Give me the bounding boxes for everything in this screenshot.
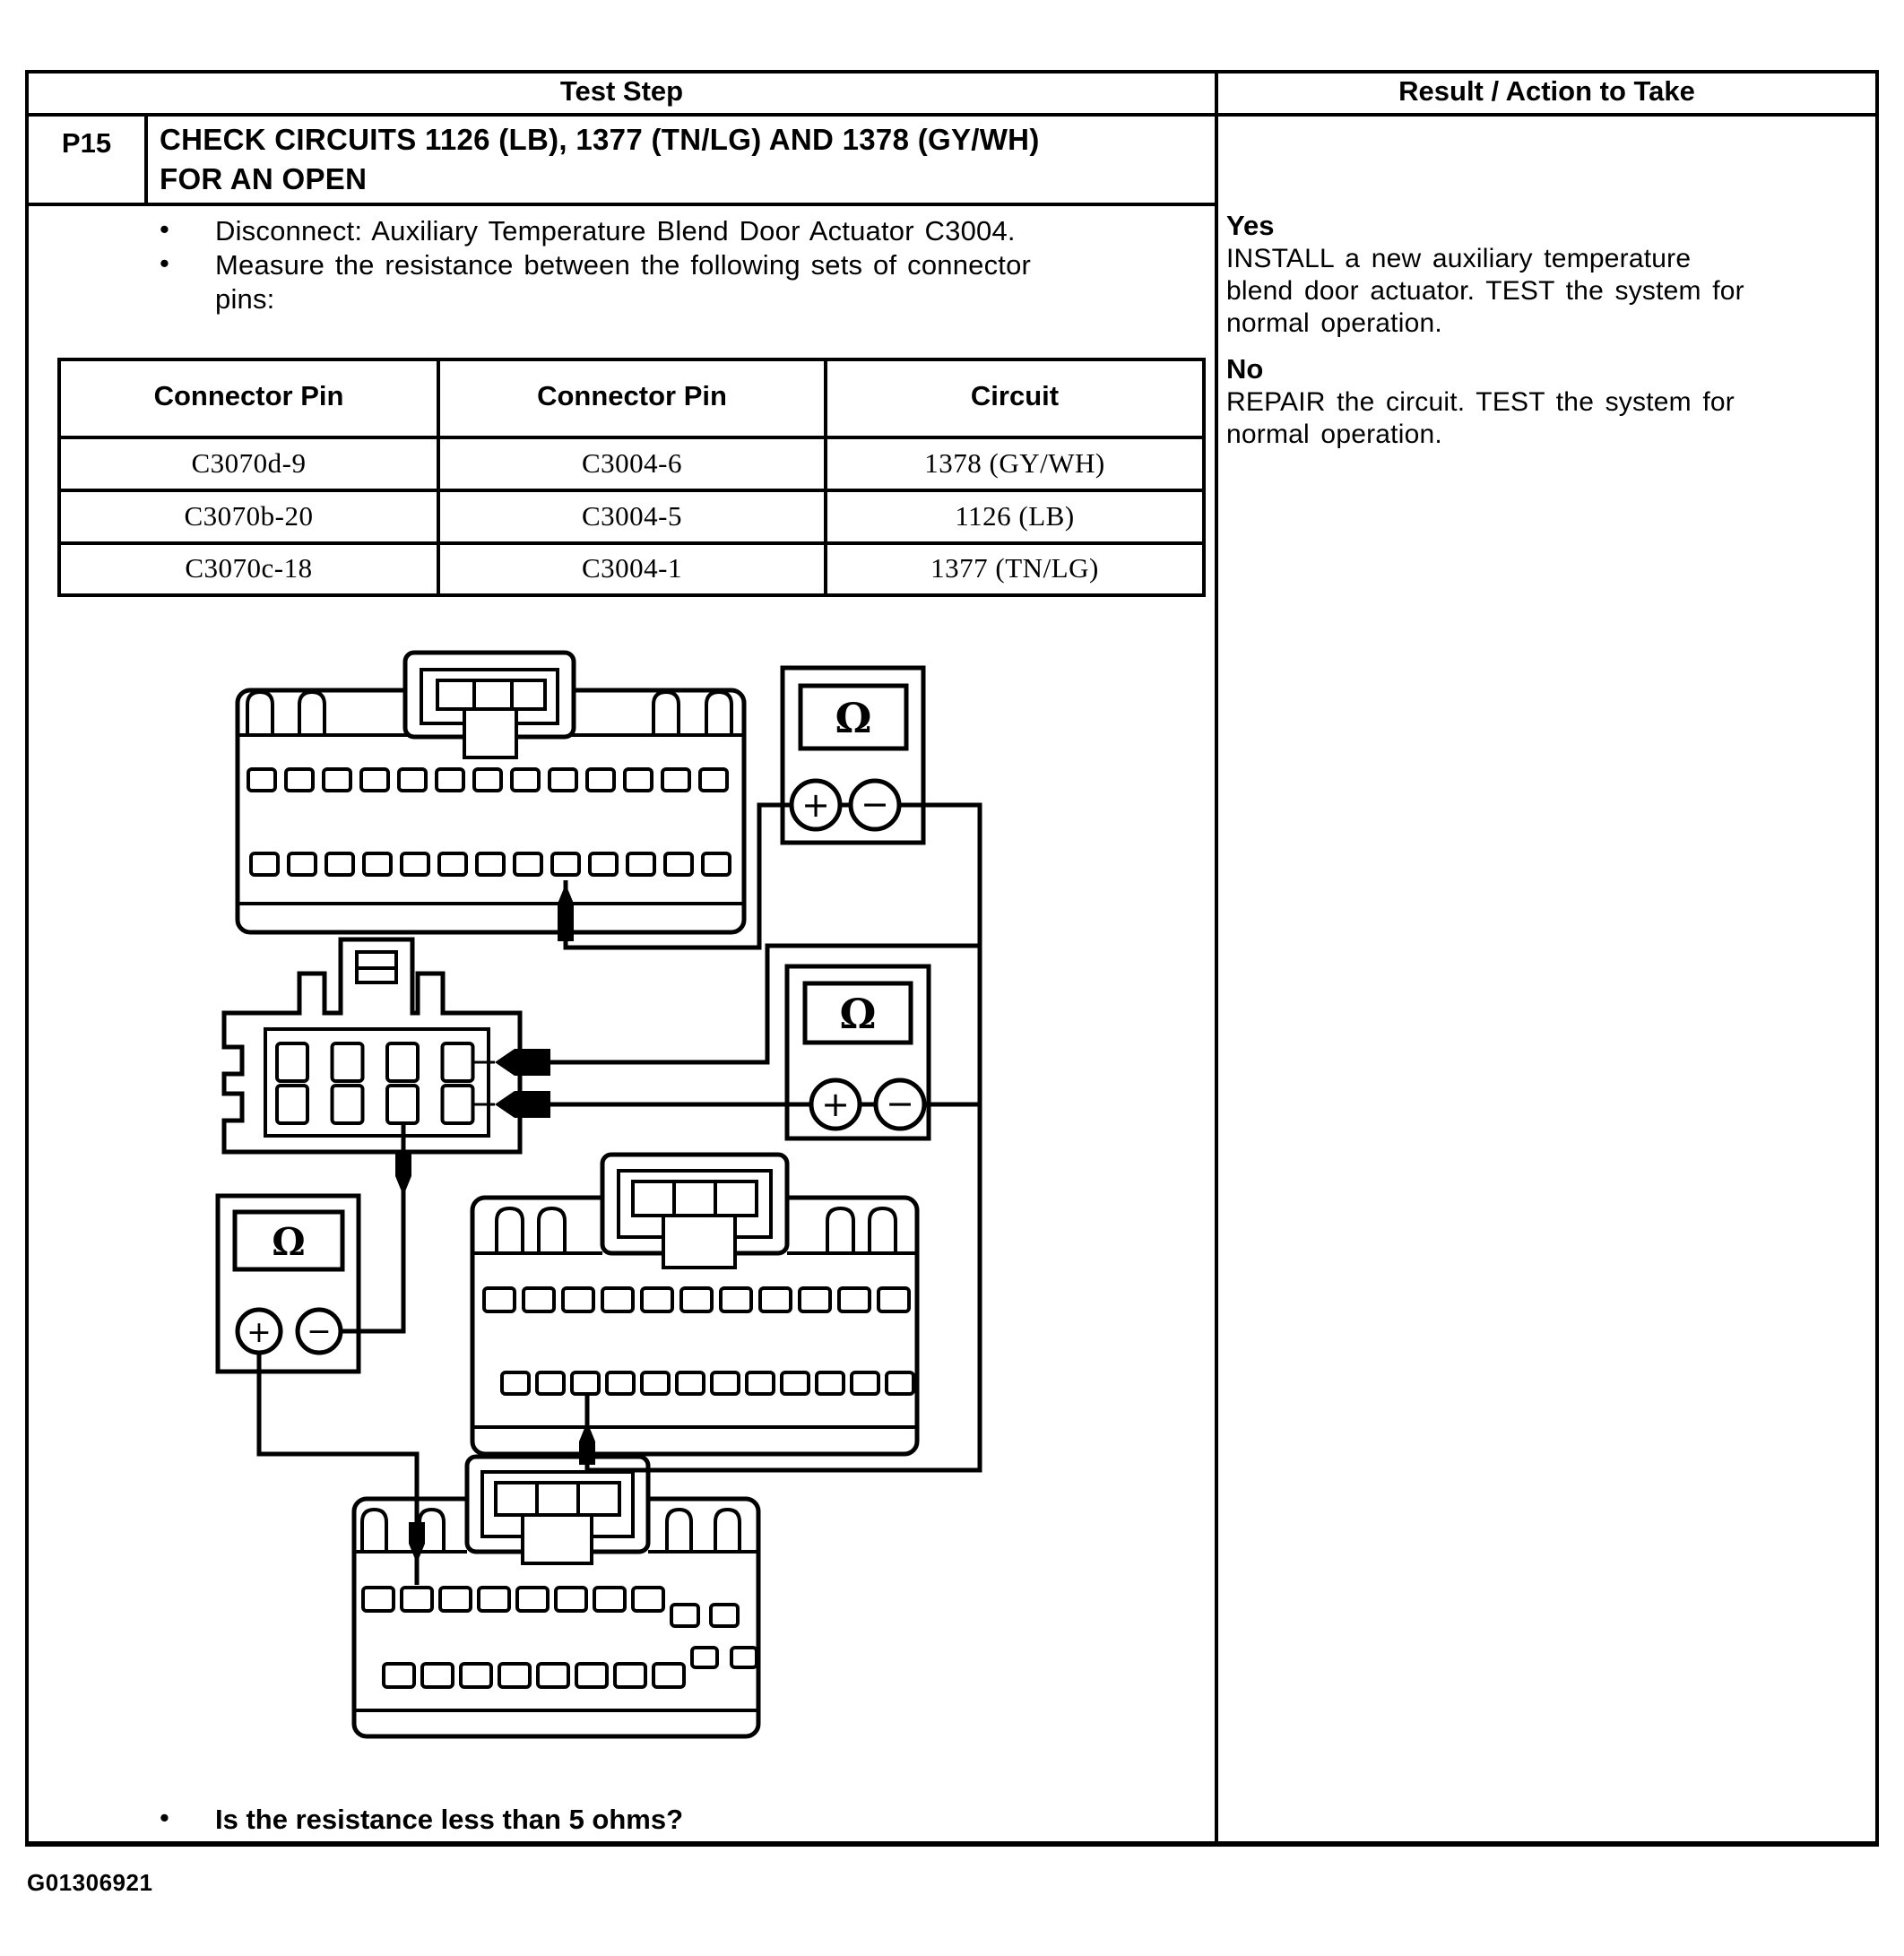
bullet-measure-line1: Measure the resistance between the follo…	[215, 249, 1031, 281]
pin-cavity	[484, 1288, 515, 1311]
pin-cavity	[703, 853, 730, 875]
step-title-line2: FOR AN OPEN	[160, 162, 367, 196]
pin-cavity	[677, 1372, 704, 1394]
pin-cavity	[587, 769, 614, 791]
wire-seal-bump	[299, 692, 325, 733]
pin-table-cell: 1126 (LB)	[827, 500, 1202, 532]
pin-cavity	[437, 769, 463, 791]
pin-cavity	[800, 1288, 830, 1311]
pin-table-rule	[57, 436, 1206, 439]
pin-cavity	[665, 853, 692, 875]
pin-cavity	[479, 1588, 509, 1611]
connector-top-pin-row-1	[248, 769, 727, 791]
pin-cavity	[615, 1664, 645, 1687]
pin-cavity	[324, 769, 351, 791]
connector-bottom-bumps	[362, 1510, 740, 1550]
probe-arrows	[395, 884, 595, 1563]
table-border-top	[25, 70, 1879, 74]
pin-cavity	[286, 769, 313, 791]
table-rule-title	[25, 203, 1218, 206]
pin-table-rule	[57, 489, 1206, 492]
wire-seal-bump	[247, 692, 273, 733]
pin-cavity	[563, 1288, 593, 1311]
pin-cavity	[364, 853, 391, 875]
result-yes-line3: normal operation.	[1226, 308, 1442, 340]
pin-cavity	[607, 1372, 634, 1394]
pin-table-header-1: Connector Pin	[61, 380, 437, 412]
probe-arrow-left	[495, 1049, 550, 1076]
pin-cavity	[461, 1664, 491, 1687]
service-manual-page: Test Step Result / Action to Take P15 CH…	[0, 0, 1904, 1956]
pin-cavity	[402, 1588, 432, 1611]
step-id: P15	[25, 127, 148, 160]
pin-cavity	[681, 1288, 712, 1311]
table-divider-columns	[1215, 70, 1218, 1845]
bullet-dot-1: •	[160, 213, 169, 246]
pin-cavity	[524, 1288, 554, 1311]
table-border-right	[1875, 70, 1879, 1847]
connector-center-pin-row-2	[502, 1372, 913, 1394]
pin-table-header-2: Connector Pin	[440, 380, 824, 412]
pin-table-rule	[57, 541, 1206, 545]
question-text: Is the resistance less than 5 ohms?	[215, 1804, 683, 1836]
table-border-left	[25, 70, 29, 1847]
wire-seal-bump	[715, 1510, 740, 1550]
bullet-dot-question: •	[160, 1802, 169, 1834]
minus-terminal: −	[307, 1313, 332, 1348]
connector-center-bumps	[497, 1208, 896, 1251]
pin-cavity	[662, 769, 689, 791]
pin-cavity	[537, 1372, 564, 1394]
pin-cavity	[512, 769, 539, 791]
probe-arrow-down	[395, 1153, 411, 1196]
pin-cavity	[363, 1588, 394, 1611]
pin-cavity	[499, 1664, 530, 1687]
pin-table-rule	[57, 358, 1206, 361]
pin-cavity	[878, 1288, 909, 1311]
pin-cavity	[671, 1605, 698, 1626]
pin-cavity	[556, 1588, 586, 1611]
pin-cavity	[474, 769, 501, 791]
pin-cavity	[477, 853, 504, 875]
pin-cavity	[817, 1372, 844, 1394]
pin-cavity	[387, 1086, 418, 1123]
pin-cavity	[402, 853, 428, 875]
pin-table-cell: C3070b-20	[61, 500, 437, 532]
pin-cavity	[887, 1372, 913, 1394]
wire-seal-bump	[667, 1510, 691, 1550]
table-rule-header	[25, 113, 1879, 117]
connector-bottom-pin-row-1-offset	[671, 1605, 738, 1626]
pin-table-cell: C3004-6	[440, 447, 824, 480]
pin-cavity	[711, 1605, 738, 1626]
pin-cavity	[852, 1372, 878, 1394]
pin-cavity	[326, 853, 353, 875]
pin-cavity	[721, 1288, 751, 1311]
pin-cavity	[399, 769, 426, 791]
pin-table-cell: C3004-1	[440, 552, 824, 584]
pin-cavity	[550, 769, 576, 791]
result-yes-label: Yes	[1226, 210, 1274, 242]
result-no-line2: normal operation.	[1226, 420, 1442, 451]
pin-cavity	[642, 1372, 669, 1394]
wire-seal-bump	[539, 1208, 565, 1251]
pin-cavity	[760, 1288, 791, 1311]
figure-id: G01306921	[27, 1870, 152, 1897]
minus-terminal: −	[886, 1084, 914, 1123]
pin-cavity	[747, 1372, 774, 1394]
wire-seal-bump	[362, 1510, 386, 1550]
pin-table-cell: C3004-5	[440, 500, 824, 532]
bullet-measure-line2: pins:	[215, 283, 274, 316]
bullet-dot-2: •	[160, 247, 169, 280]
plus-terminal: +	[801, 785, 830, 825]
wire-seal-bump	[653, 692, 679, 733]
pin-cavity	[590, 853, 617, 875]
connector-actuator-c3004	[224, 939, 520, 1152]
ohmmeter-1-terminals: + −	[792, 781, 899, 829]
wire-seal-bump	[827, 1208, 853, 1251]
pin-cavity	[517, 1588, 548, 1611]
pin-cavity	[277, 1086, 307, 1123]
pin-table-cell: 1378 (GY/WH)	[827, 447, 1202, 480]
plus-terminal: +	[247, 1314, 272, 1349]
connector-center-pin-row-1	[484, 1288, 909, 1311]
connector-large-center	[472, 1155, 917, 1454]
pin-cavity	[361, 769, 388, 791]
column-header-test-step: Test Step	[25, 75, 1218, 108]
plus-terminal: +	[821, 1085, 850, 1124]
result-no-line1: REPAIR the circuit. TEST the system for	[1226, 387, 1735, 419]
pin-cavity	[443, 1086, 473, 1123]
connector-bottom-pin-row-2-offset	[692, 1648, 757, 1667]
pin-cavity	[443, 1043, 473, 1081]
pin-cavity	[538, 1664, 568, 1687]
pin-cavity	[731, 1648, 757, 1667]
pin-cavity	[387, 1043, 418, 1081]
step-title-line1: CHECK CIRCUITS 1126 (LB), 1377 (TN/LG) A…	[160, 123, 1040, 157]
connector-c3004-pin-row-2	[277, 1086, 473, 1123]
result-no-label: No	[1226, 353, 1263, 385]
ohmmeter-1: Ω	[783, 668, 923, 843]
pin-cavity	[700, 769, 727, 791]
pin-table-cell: C3070c-18	[61, 552, 437, 584]
wire-seal-bump	[706, 692, 731, 733]
probe-arrow-up	[558, 884, 574, 941]
ohm-symbol: Ω	[835, 694, 872, 742]
pin-table-cell: 1377 (TN/LG)	[827, 552, 1202, 584]
connector-bottom-pin-row-2	[384, 1664, 684, 1687]
connector-top-pin-row-2	[251, 853, 730, 875]
wire-seal-bump	[870, 1208, 896, 1251]
bullet-disconnect: Disconnect: Auxiliary Temperature Blend …	[215, 215, 1016, 247]
pin-cavity	[625, 769, 652, 791]
pin-table-rule-v	[1202, 358, 1206, 597]
minus-terminal: −	[861, 784, 889, 824]
wire-seal-bump	[497, 1208, 523, 1251]
pin-table-header-3: Circuit	[827, 380, 1202, 412]
pin-table-cell: C3070d-9	[61, 447, 437, 480]
connector-top-bumps	[247, 692, 731, 733]
pin-cavity	[627, 853, 654, 875]
wire-seal-bump	[420, 1510, 444, 1550]
pin-cavity	[602, 1288, 633, 1311]
pin-cavity	[384, 1664, 414, 1687]
pin-cavity	[248, 769, 275, 791]
pin-cavity	[653, 1664, 684, 1687]
ohmmeter-2-terminals: + −	[811, 1080, 924, 1129]
pin-cavity	[633, 1588, 663, 1611]
pin-cavity	[333, 1043, 363, 1081]
pin-cavity	[515, 853, 541, 875]
pin-cavity	[712, 1372, 739, 1394]
pin-cavity	[277, 1043, 307, 1081]
connector-large-top	[238, 653, 744, 932]
ohmmeter-3: Ω	[218, 1196, 359, 1372]
connector-large-bottom	[354, 1457, 758, 1736]
pin-cavity	[594, 1588, 625, 1611]
pin-cavity	[692, 1648, 717, 1667]
pin-cavity	[422, 1664, 453, 1687]
ohmmeter-3-terminals: + −	[238, 1310, 341, 1353]
table-border-bottom	[25, 1841, 1879, 1847]
pin-cavity	[552, 853, 579, 875]
ohm-symbol: Ω	[272, 1220, 305, 1264]
probe-arrow-left	[495, 1091, 550, 1118]
pin-cavity	[439, 853, 466, 875]
pin-cavity	[642, 1288, 672, 1311]
result-yes-line1: INSTALL a new auxiliary temperature	[1226, 244, 1691, 275]
test-lead-wires	[259, 805, 980, 1585]
connector-c3004-pin-row-1	[277, 1043, 473, 1081]
pin-cavity	[251, 853, 278, 875]
pin-cavity	[289, 853, 316, 875]
connector-bottom-pin-row-1	[363, 1588, 663, 1611]
result-yes-line2: blend door actuator. TEST the system for	[1226, 276, 1744, 307]
pin-cavity	[502, 1372, 529, 1394]
probe-arrow-up	[579, 1422, 595, 1465]
pin-cavity	[440, 1588, 471, 1611]
ohm-symbol: Ω	[840, 990, 877, 1038]
pin-table-rule	[57, 593, 1206, 597]
pin-cavity	[576, 1664, 607, 1687]
pin-cavity	[333, 1086, 363, 1123]
ohmmeter-2: Ω	[787, 966, 929, 1138]
pin-cavity	[782, 1372, 809, 1394]
probe-arrow-down	[409, 1522, 425, 1563]
pin-cavity	[839, 1288, 870, 1311]
pin-cavity	[572, 1372, 599, 1394]
column-header-result: Result / Action to Take	[1218, 75, 1875, 108]
